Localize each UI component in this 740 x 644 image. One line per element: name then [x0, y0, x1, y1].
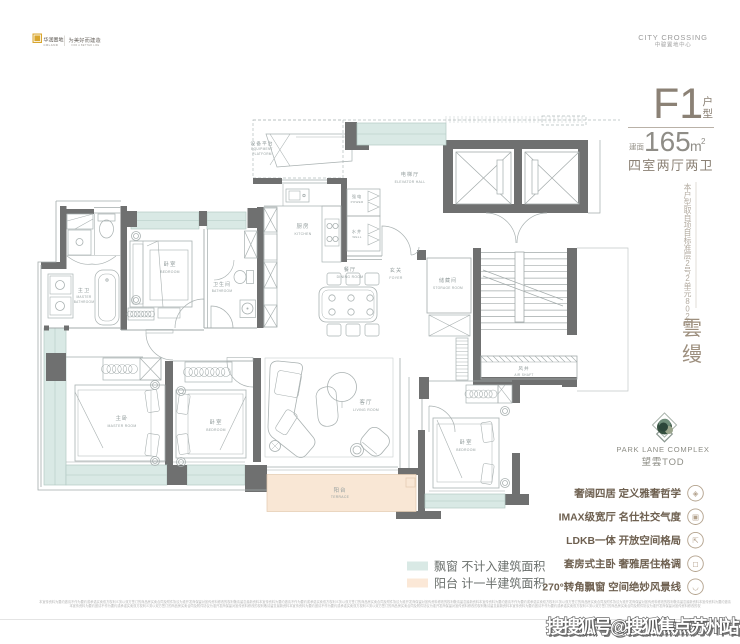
svg-text:TERRACE: TERRACE — [331, 495, 350, 499]
svg-text:型: 型 — [703, 107, 714, 120]
svg-text:主卫: 主卫 — [78, 286, 90, 294]
svg-text:水井: 水井 — [352, 228, 362, 235]
svg-text:本宣传资料为要约邀请不作为要约或承诺买卖双方权利义务以双方签: 本宣传资料为要约邀请不作为要约或承诺买卖双方权利义务以双方签订的商品房买卖合同及… — [69, 603, 701, 608]
svg-text:BATHROOM: BATHROOM — [212, 289, 233, 293]
svg-text:F1: F1 — [653, 80, 703, 128]
svg-text:WELL: WELL — [352, 235, 361, 239]
svg-text:主卧: 主卧 — [115, 414, 128, 422]
svg-text:望雲TOD: 望雲TOD — [642, 456, 685, 468]
svg-text:PLATFORM: PLATFORM — [252, 152, 272, 156]
svg-text:缦: 缦 — [682, 343, 702, 366]
svg-text:KITCHEN: KITCHEN — [295, 232, 312, 236]
svg-text:2: 2 — [701, 137, 706, 146]
svg-text:m: m — [690, 138, 702, 154]
svg-text:BEDROOM: BEDROOM — [456, 448, 476, 452]
svg-text:PARK LANE COMPLEX: PARK LANE COMPLEX — [616, 445, 709, 454]
svg-text:BATHROOM: BATHROOM — [74, 300, 95, 304]
svg-text:阳台: 阳台 — [333, 486, 346, 494]
svg-text:165: 165 — [644, 126, 691, 157]
svg-text:卧室: 卧室 — [459, 438, 472, 446]
svg-text:建面: 建面 — [629, 142, 644, 152]
svg-text:搜搜狐号@搜狐焦点苏州站: 搜搜狐号@搜狐焦点苏州站 — [546, 616, 740, 637]
svg-text:为美好而建造: 为美好而建造 — [69, 36, 102, 44]
svg-text:DINING ROOM: DINING ROOM — [337, 275, 364, 279]
svg-text:⇱: ⇱ — [692, 536, 699, 545]
svg-text:卧室: 卧室 — [163, 260, 176, 268]
svg-text:四室两厅两卫: 四室两厅两卫 — [628, 158, 714, 173]
svg-text:LDKB一体 开放空间格局: LDKB一体 开放空间格局 — [566, 534, 681, 547]
svg-text:电梯厅: 电梯厅 — [401, 170, 420, 178]
svg-text:户: 户 — [703, 95, 714, 108]
svg-text:储藏间: 储藏间 — [439, 277, 457, 284]
svg-text:FOR A BETTER LIFE: FOR A BETTER LIFE — [72, 44, 100, 47]
svg-text:LIVING ROOM: LIVING ROOM — [353, 408, 379, 412]
svg-text:飘窗 不计入建筑面积: 飘窗 不计入建筑面积 — [434, 559, 545, 574]
svg-text:IMAX级宽厅 名仕社交气度: IMAX级宽厅 名仕社交气度 — [559, 511, 682, 524]
svg-text:风井: 风井 — [518, 365, 529, 372]
svg-text:ELEVATOR HALL: ELEVATOR HALL — [395, 180, 426, 184]
svg-text:STORAGE ROOM: STORAGE ROOM — [433, 286, 463, 290]
svg-text:EQUIPMENT: EQUIPMENT — [251, 147, 273, 151]
svg-text:阳台 计一半建筑面积: 阳台 计一半建筑面积 — [434, 576, 545, 591]
svg-text:MASTER ROOM: MASTER ROOM — [108, 424, 137, 428]
svg-text:MASTER: MASTER — [76, 295, 91, 299]
svg-text:套房式主卧 奢雅居住格调: 套房式主卧 奢雅居住格调 — [563, 558, 681, 571]
svg-text:POWER: POWER — [351, 200, 364, 204]
svg-text:BEDROOM: BEDROOM — [160, 270, 180, 274]
svg-text:厨房: 厨房 — [296, 222, 309, 230]
svg-text:▣: ▣ — [692, 513, 699, 522]
svg-text:餐厅: 餐厅 — [344, 265, 356, 273]
svg-text:设备平台: 设备平台 — [250, 140, 273, 147]
svg-text:CITY CROSSING: CITY CROSSING — [638, 33, 707, 42]
svg-text:客厅: 客厅 — [359, 398, 372, 406]
svg-text:◡: ◡ — [692, 583, 699, 592]
svg-text:CRLAND: CRLAND — [44, 43, 59, 47]
svg-text:AIR SHAFT: AIR SHAFT — [514, 373, 533, 377]
svg-text:强电: 强电 — [352, 193, 362, 200]
svg-text:玄关: 玄关 — [390, 266, 402, 274]
svg-text:卫生间: 卫生间 — [213, 281, 231, 288]
svg-text:BEDROOM: BEDROOM — [206, 428, 226, 432]
svg-text:◻: ◻ — [692, 560, 698, 569]
svg-text:FOYER: FOYER — [389, 276, 402, 280]
svg-text:中骏置地中心: 中骏置地中心 — [655, 41, 692, 49]
svg-text:奢阔四居 定义雅奢哲学: 奢阔四居 定义雅奢哲学 — [573, 487, 681, 500]
svg-text:270°转角飘窗 空间绝妙风景线: 270°转角飘窗 空间绝妙风景线 — [542, 581, 681, 594]
svg-text:雲: 雲 — [682, 318, 702, 340]
svg-text:卧室: 卧室 — [209, 418, 222, 426]
